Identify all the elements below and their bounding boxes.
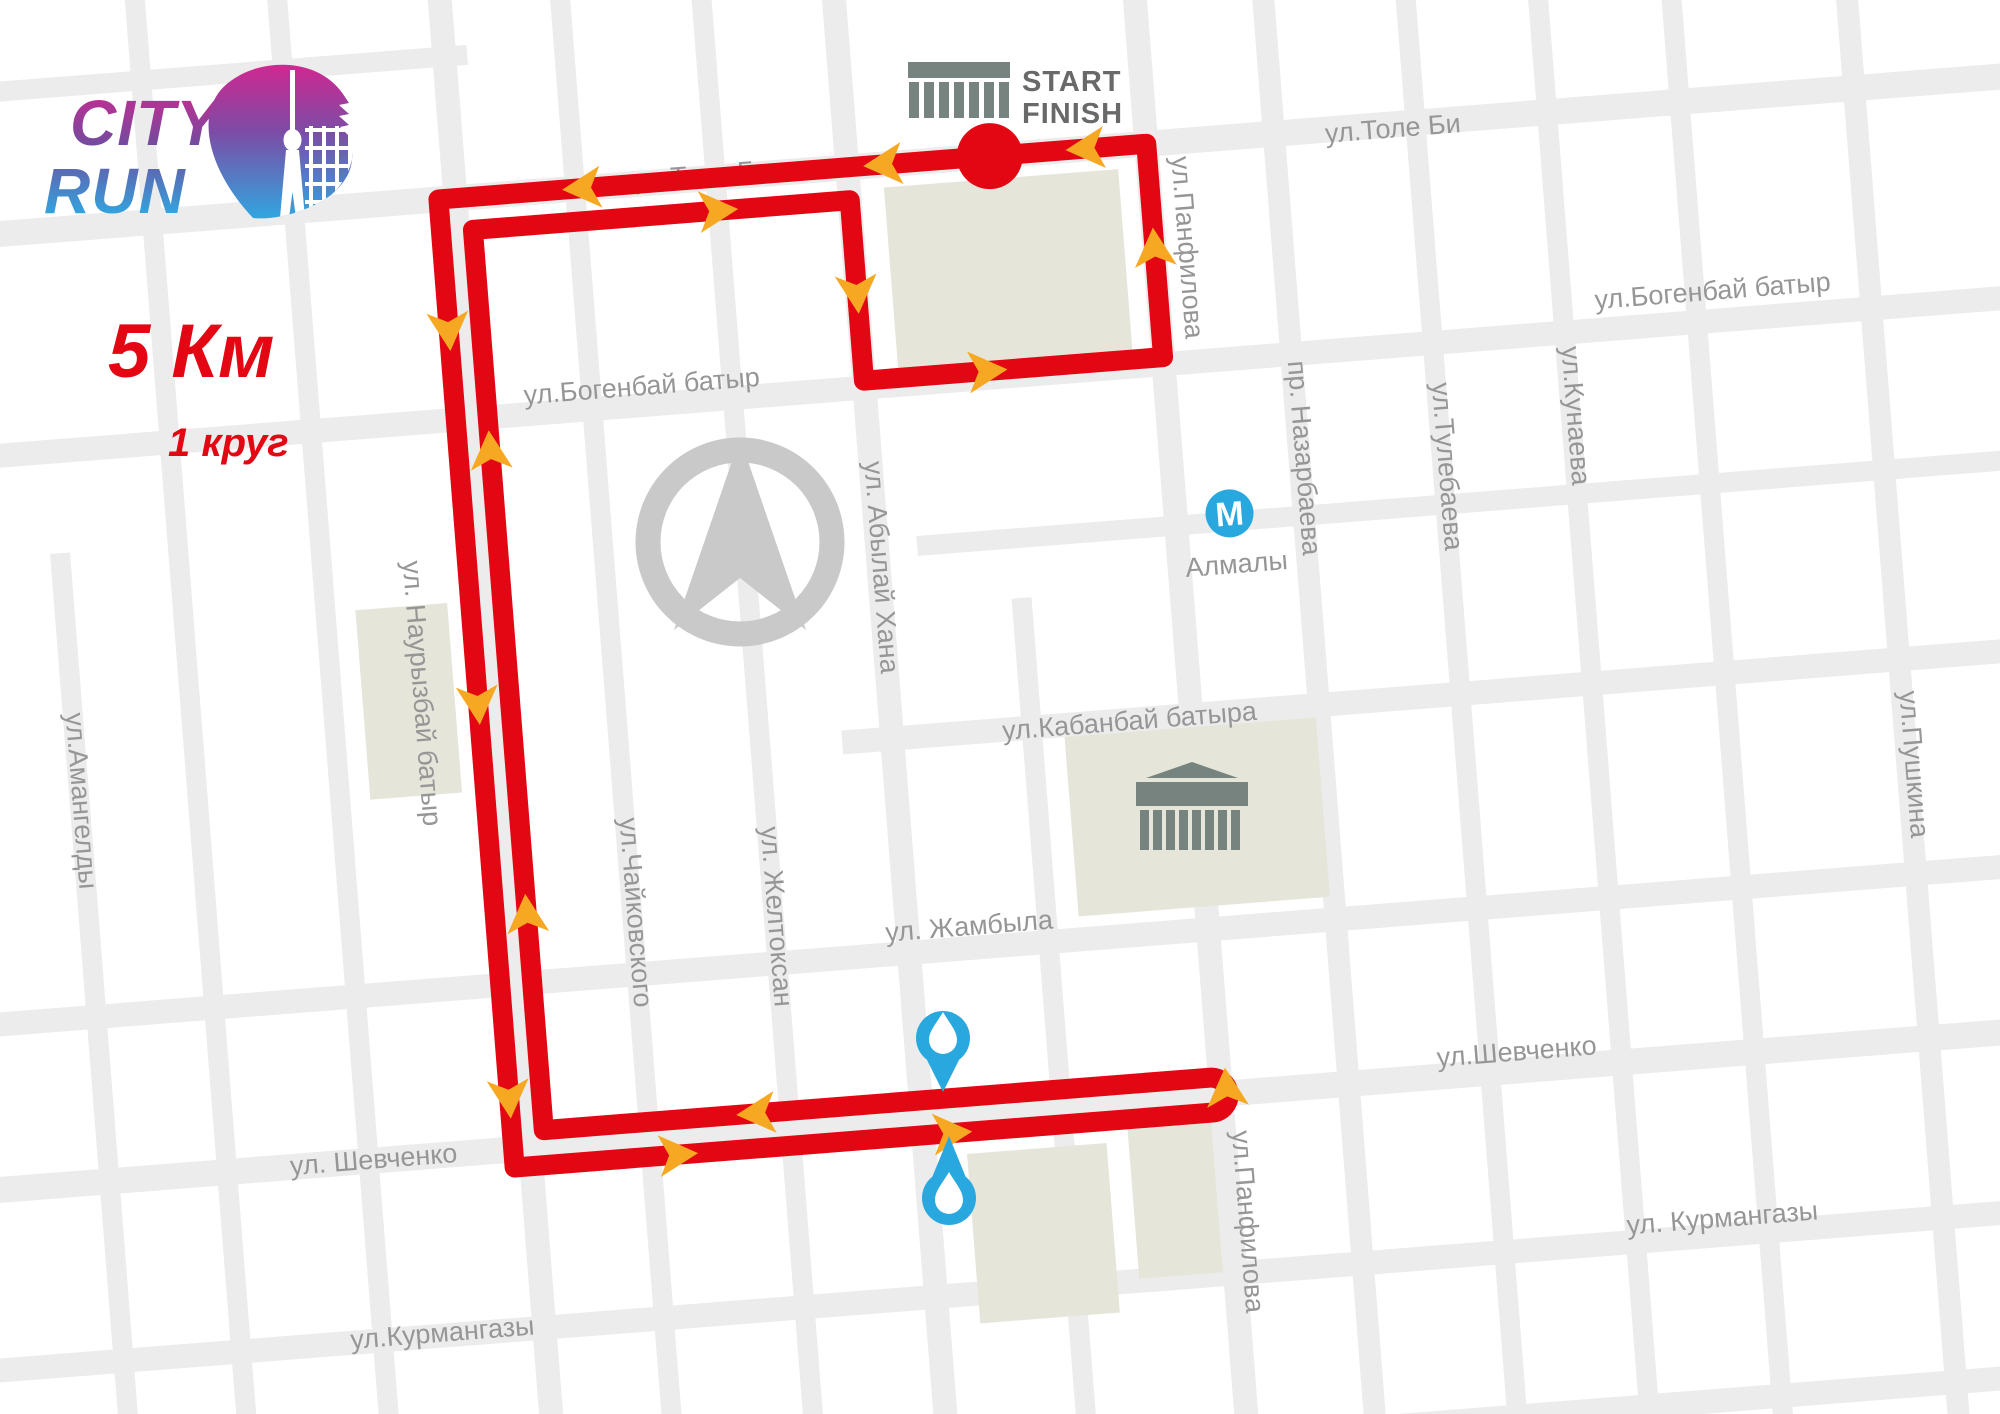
street-label: ул.Панфилова [1165, 155, 1209, 341]
city-block [884, 169, 1133, 369]
street-label: ул.Толе Би [1324, 108, 1462, 149]
map-canvas: ул.Толе Биул.Толе Биул.Богенбай батырул.… [0, 0, 2000, 1414]
metro-station-label: Алмалы [1184, 545, 1289, 583]
street-label: ул.Пушкина [1894, 689, 1936, 839]
city-block [1127, 1115, 1223, 1279]
brand-title-line2: RUN [44, 155, 186, 227]
street [0, 846, 2000, 1043]
street-label: ул. Абылай Хана [858, 460, 905, 676]
street-label: ул.Тулебаева [1426, 381, 1469, 552]
laps-label: 1 круг [168, 421, 289, 465]
city-run-course-map: ул.Толе Биул.Толе Биул.Богенбай батырул.… [0, 0, 2000, 1414]
finish-label: FINISH [1022, 98, 1123, 130]
distance-label: 5 Км [108, 309, 274, 394]
street-label: ул.Кунаева [1555, 345, 1596, 487]
street [0, 1354, 2000, 1414]
rotated-map-layer: ул.Толе Биул.Толе Биул.Богенбай батырул.… [0, 0, 2000, 1414]
colonnade-icon [908, 62, 1010, 118]
metro-letter: M [1214, 494, 1245, 534]
start-finish-building: START FINISH [908, 62, 1123, 130]
brand-logo: CITY RUN [44, 65, 360, 227]
start-label: START [1022, 66, 1122, 98]
street [1517, 0, 1664, 1414]
city-block [967, 1143, 1120, 1323]
street [50, 552, 152, 1414]
street-label: ул. Желтоксан [755, 825, 799, 1008]
brand-title-line1: CITY [70, 87, 224, 159]
street-label: ул.Амангелды [60, 711, 104, 890]
